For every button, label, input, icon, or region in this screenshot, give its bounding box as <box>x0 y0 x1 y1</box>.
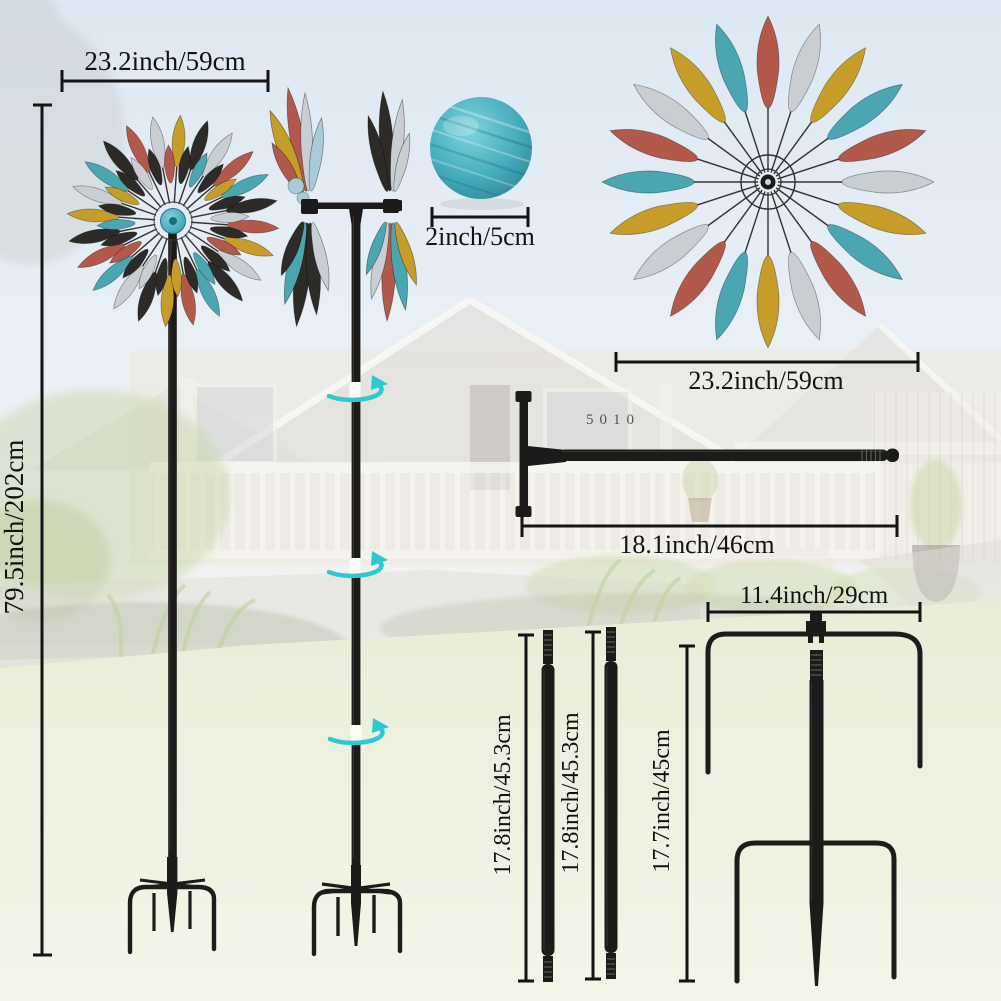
spinner-pole <box>168 232 177 857</box>
dim-label-left-width: 23.2inch/59cm <box>84 46 245 76</box>
product-dimension-diagram: 5010 <box>0 0 1001 1001</box>
dim-label-stake-width: 11.4inch/29cm <box>740 582 889 609</box>
diagram-canvas: 5010 <box>0 0 1001 1001</box>
dim-label-rod: 18.1inch/46cm <box>619 530 774 559</box>
dim-label-total-height: 79.5inch/202cm <box>0 440 29 615</box>
dim-label-stake-height: 17.7inch/45cm <box>649 729 675 873</box>
dim-label-right-width: 23.2inch/59cm <box>688 366 843 395</box>
dim-label-pole-b: 17.8inch/45.3cm <box>558 712 584 874</box>
extension-pole-b <box>605 627 618 979</box>
extension-pole-a <box>542 630 555 982</box>
dim-label-pole-a: 17.8inch/45.3cm <box>490 714 516 876</box>
dim-label-ball: 2inch/5cm <box>425 222 535 251</box>
